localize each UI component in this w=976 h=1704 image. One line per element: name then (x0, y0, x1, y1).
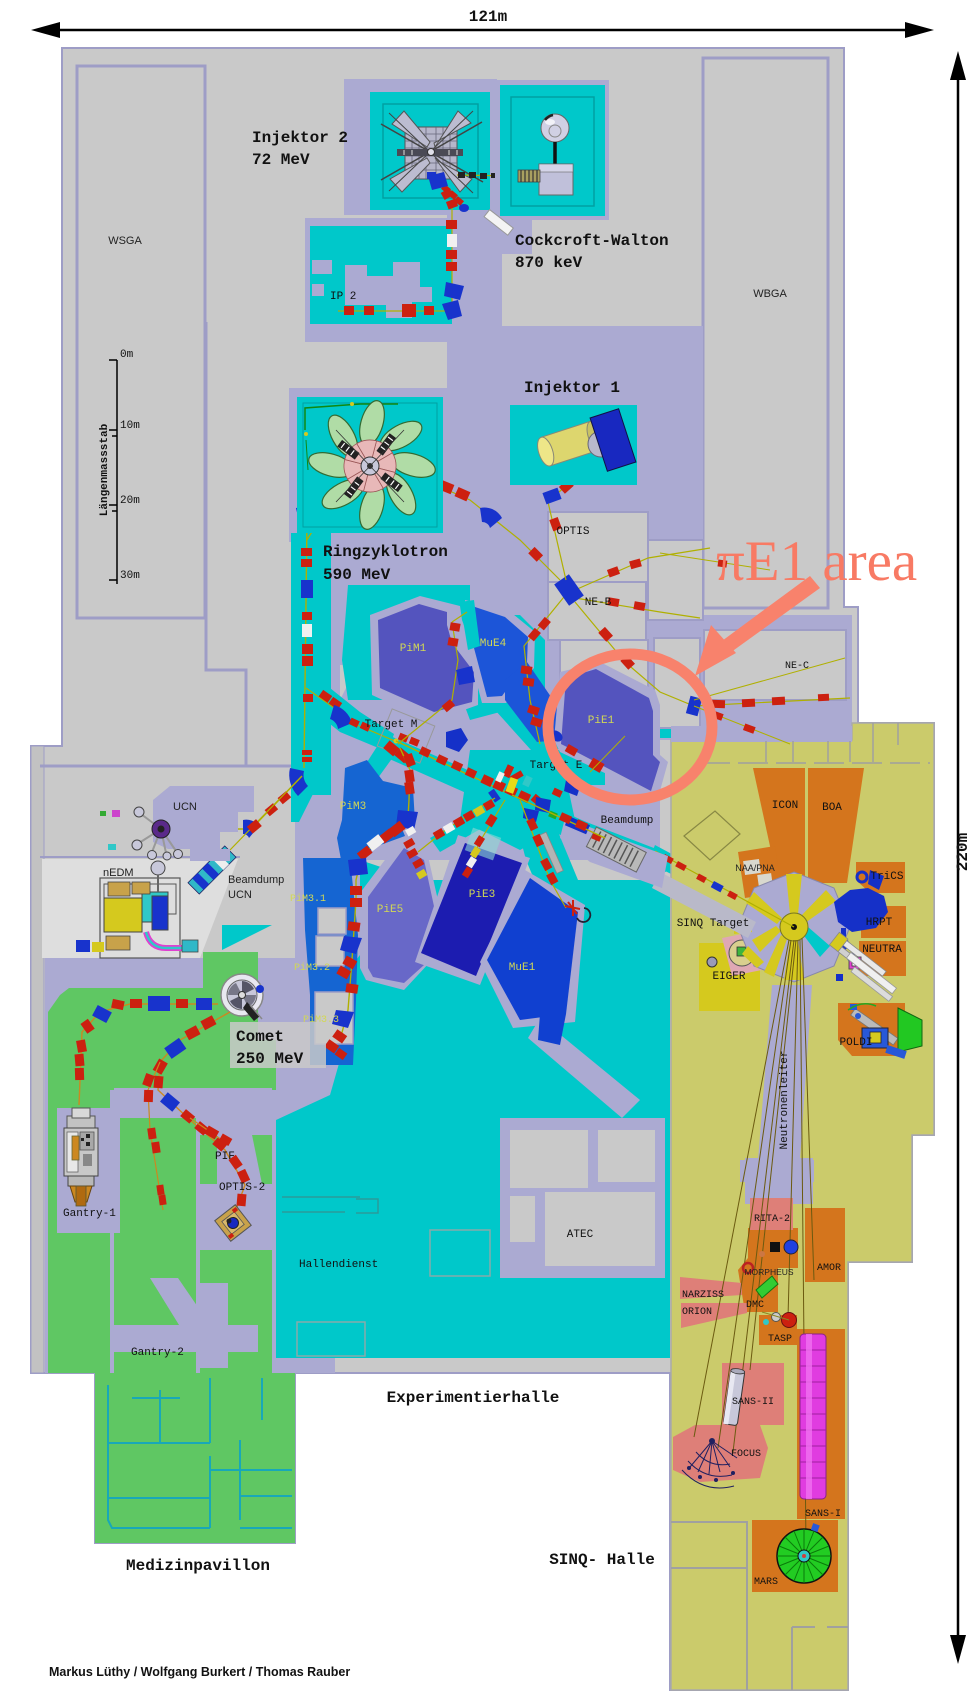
svg-text:Injektor 2: Injektor 2 (252, 129, 348, 147)
svg-text:30m: 30m (120, 570, 140, 582)
svg-text:Längenmassstab: Längenmassstab (99, 423, 111, 516)
svg-text:Markus Lüthy / Wolfgang Burker: Markus Lüthy / Wolfgang Burkert / Thomas… (49, 1665, 350, 1679)
svg-text:SINQ Target: SINQ Target (677, 918, 750, 930)
svg-text:Ringzyklotron: Ringzyklotron (323, 543, 448, 561)
svg-text:MuE4: MuE4 (480, 638, 507, 650)
svg-text:WBGA: WBGA (753, 288, 787, 300)
svg-text:MORPHEUS: MORPHEUS (744, 1267, 793, 1277)
svg-text:Comet: Comet (236, 1028, 284, 1046)
svg-text:HRPT: HRPT (866, 917, 893, 929)
svg-text:ORION: ORION (682, 1307, 712, 1318)
svg-text:UCN: UCN (173, 801, 197, 813)
svg-text:Injektor 1: Injektor 1 (524, 379, 620, 397)
svg-text:NE-C: NE-C (785, 661, 809, 672)
svg-text:UCN: UCN (228, 889, 252, 901)
svg-text:PiM3.3: PiM3.3 (303, 1014, 339, 1026)
svg-text:Beamdump: Beamdump (601, 815, 654, 827)
svg-text:NEUTRA: NEUTRA (862, 944, 902, 956)
svg-text:SINQ- Halle: SINQ- Halle (549, 1551, 655, 1569)
svg-text:PiE3: PiE3 (469, 889, 495, 901)
svg-text:TriCS: TriCS (870, 871, 903, 883)
svg-text:SANS-I: SANS-I (805, 1509, 841, 1520)
svg-text:Neutronenleiter: Neutronenleiter (779, 1050, 791, 1149)
svg-text:72 MeV: 72 MeV (252, 151, 310, 169)
svg-text:870 keV: 870 keV (515, 254, 583, 272)
svg-text:PiE5: PiE5 (377, 904, 403, 916)
svg-text:590 MeV: 590 MeV (323, 566, 391, 584)
svg-text:IP 2: IP 2 (330, 291, 356, 303)
svg-text:NAA/PNA: NAA/PNA (735, 863, 775, 873)
svg-text:MARS: MARS (754, 1577, 778, 1588)
svg-text:250 MeV: 250 MeV (236, 1050, 304, 1068)
svg-text:EIGER: EIGER (712, 971, 745, 983)
svg-text:10m: 10m (120, 420, 140, 432)
svg-text:PIF: PIF (215, 1151, 235, 1163)
svg-text:20m: 20m (120, 495, 140, 507)
svg-text:Medizinpavillon: Medizinpavillon (126, 1557, 270, 1575)
svg-text:ATEC: ATEC (567, 1229, 594, 1241)
svg-text:πE1 area: πE1 area (716, 530, 917, 593)
svg-text:PiM3.2: PiM3.2 (294, 962, 330, 974)
svg-text:AMOR: AMOR (817, 1263, 841, 1274)
svg-text:PiM1: PiM1 (400, 643, 427, 655)
svg-text:WSGA: WSGA (108, 235, 142, 247)
svg-text:nEDM: nEDM (103, 867, 134, 879)
svg-text:FOCUS: FOCUS (731, 1449, 761, 1460)
svg-text:MuE1: MuE1 (509, 962, 536, 974)
svg-text:Beamdump: Beamdump (228, 874, 284, 886)
svg-text:0m: 0m (120, 349, 134, 361)
svg-text:ICON: ICON (772, 800, 798, 812)
svg-text:PiM3: PiM3 (340, 801, 366, 813)
svg-text:PiE1: PiE1 (588, 715, 615, 727)
svg-text:Cockcroft-Walton: Cockcroft-Walton (515, 232, 669, 250)
svg-text:PiM3.1: PiM3.1 (290, 893, 326, 905)
svg-text:121m: 121m (469, 8, 508, 26)
svg-text:NE-B: NE-B (585, 597, 612, 609)
svg-text:POLDI: POLDI (839, 1037, 872, 1049)
svg-text:OPTIS: OPTIS (556, 526, 589, 538)
svg-text:Experimentierhalle: Experimentierhalle (387, 1389, 560, 1407)
svg-text:RITA-2: RITA-2 (754, 1214, 790, 1225)
svg-text:Target M: Target M (365, 719, 418, 731)
svg-text:Gantry-2: Gantry-2 (131, 1347, 184, 1359)
svg-text:SANS-II: SANS-II (732, 1397, 774, 1408)
svg-text:OPTIS-2: OPTIS-2 (219, 1182, 265, 1194)
svg-text:220m: 220m (954, 832, 972, 871)
svg-text:DMC: DMC (746, 1300, 764, 1311)
svg-text:NARZISS: NARZISS (682, 1290, 724, 1301)
svg-text:Gantry-1: Gantry-1 (63, 1208, 116, 1220)
svg-text:BOA: BOA (822, 802, 842, 814)
svg-text:TASP: TASP (768, 1334, 792, 1345)
svg-text:Hallendienst: Hallendienst (299, 1259, 378, 1271)
